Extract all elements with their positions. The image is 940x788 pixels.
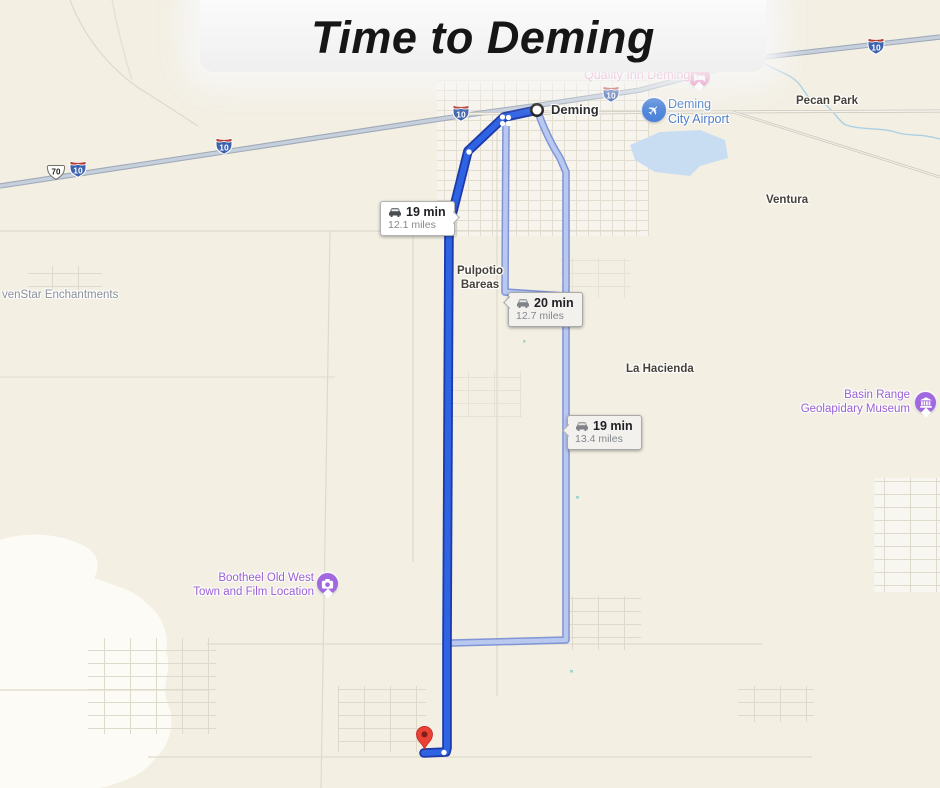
label-sevenstar-enchantments: venStar Enchantments xyxy=(2,288,118,302)
i10-shield-icon: 10 xyxy=(214,137,234,160)
svg-text:10: 10 xyxy=(456,110,466,120)
i10-shield-number: 10 xyxy=(73,166,83,176)
route-duration: 19 min xyxy=(406,205,446,219)
page-title: Time to Deming xyxy=(311,12,655,64)
svg-text:10: 10 xyxy=(219,143,229,153)
svg-text:10: 10 xyxy=(871,43,881,53)
route-bubble-alt2[interactable]: 19 min 13.4 miles xyxy=(567,415,642,450)
i10-shield-icon: 10 xyxy=(68,160,88,183)
route-duration: 20 min xyxy=(534,296,574,310)
map-canvas[interactable]: 70 10 10 10 10 10 xyxy=(0,0,940,788)
airplane-icon[interactable]: ✈ xyxy=(642,98,666,122)
route-distance: 13.4 miles xyxy=(575,433,633,445)
us70-shield-icon: 70 xyxy=(45,164,67,186)
route-bubble-primary[interactable]: 19 min 12.1 miles xyxy=(380,201,455,236)
i10-shield-icon: 10 xyxy=(451,104,471,127)
label-deming-airport[interactable]: Deming City Airport xyxy=(668,97,729,128)
title-banner: Time to Deming xyxy=(200,0,766,72)
route-bubble-alt1[interactable]: 20 min 12.7 miles xyxy=(508,292,583,327)
label-pulpotio-bareas: Pulpotio Bareas xyxy=(445,264,515,292)
car-icon xyxy=(516,298,530,309)
label-bootheel[interactable]: Bootheel Old West Town and Film Location xyxy=(190,571,314,599)
label-deming: Deming xyxy=(551,102,599,118)
label-la-hacienda: La Hacienda xyxy=(626,362,694,376)
i10-shield-icon: 10 xyxy=(866,37,886,60)
car-icon xyxy=(388,207,402,218)
route-distance: 12.1 miles xyxy=(388,219,446,231)
svg-text:10: 10 xyxy=(606,91,616,101)
i10-shield-icon: 10 xyxy=(601,85,621,108)
camera-icon[interactable] xyxy=(317,573,338,594)
route-distance: 12.7 miles xyxy=(516,310,574,322)
route-duration: 19 min xyxy=(593,419,633,433)
museum-icon[interactable] xyxy=(915,392,936,413)
start-circle-icon[interactable] xyxy=(531,104,543,116)
label-ventura: Ventura xyxy=(766,193,808,207)
us70-shield-number: 70 xyxy=(52,168,61,177)
label-pecan-park: Pecan Park xyxy=(796,94,858,108)
car-icon xyxy=(575,421,589,432)
label-basin-range-museum[interactable]: Basin Range Geolapidary Museum xyxy=(798,388,910,416)
